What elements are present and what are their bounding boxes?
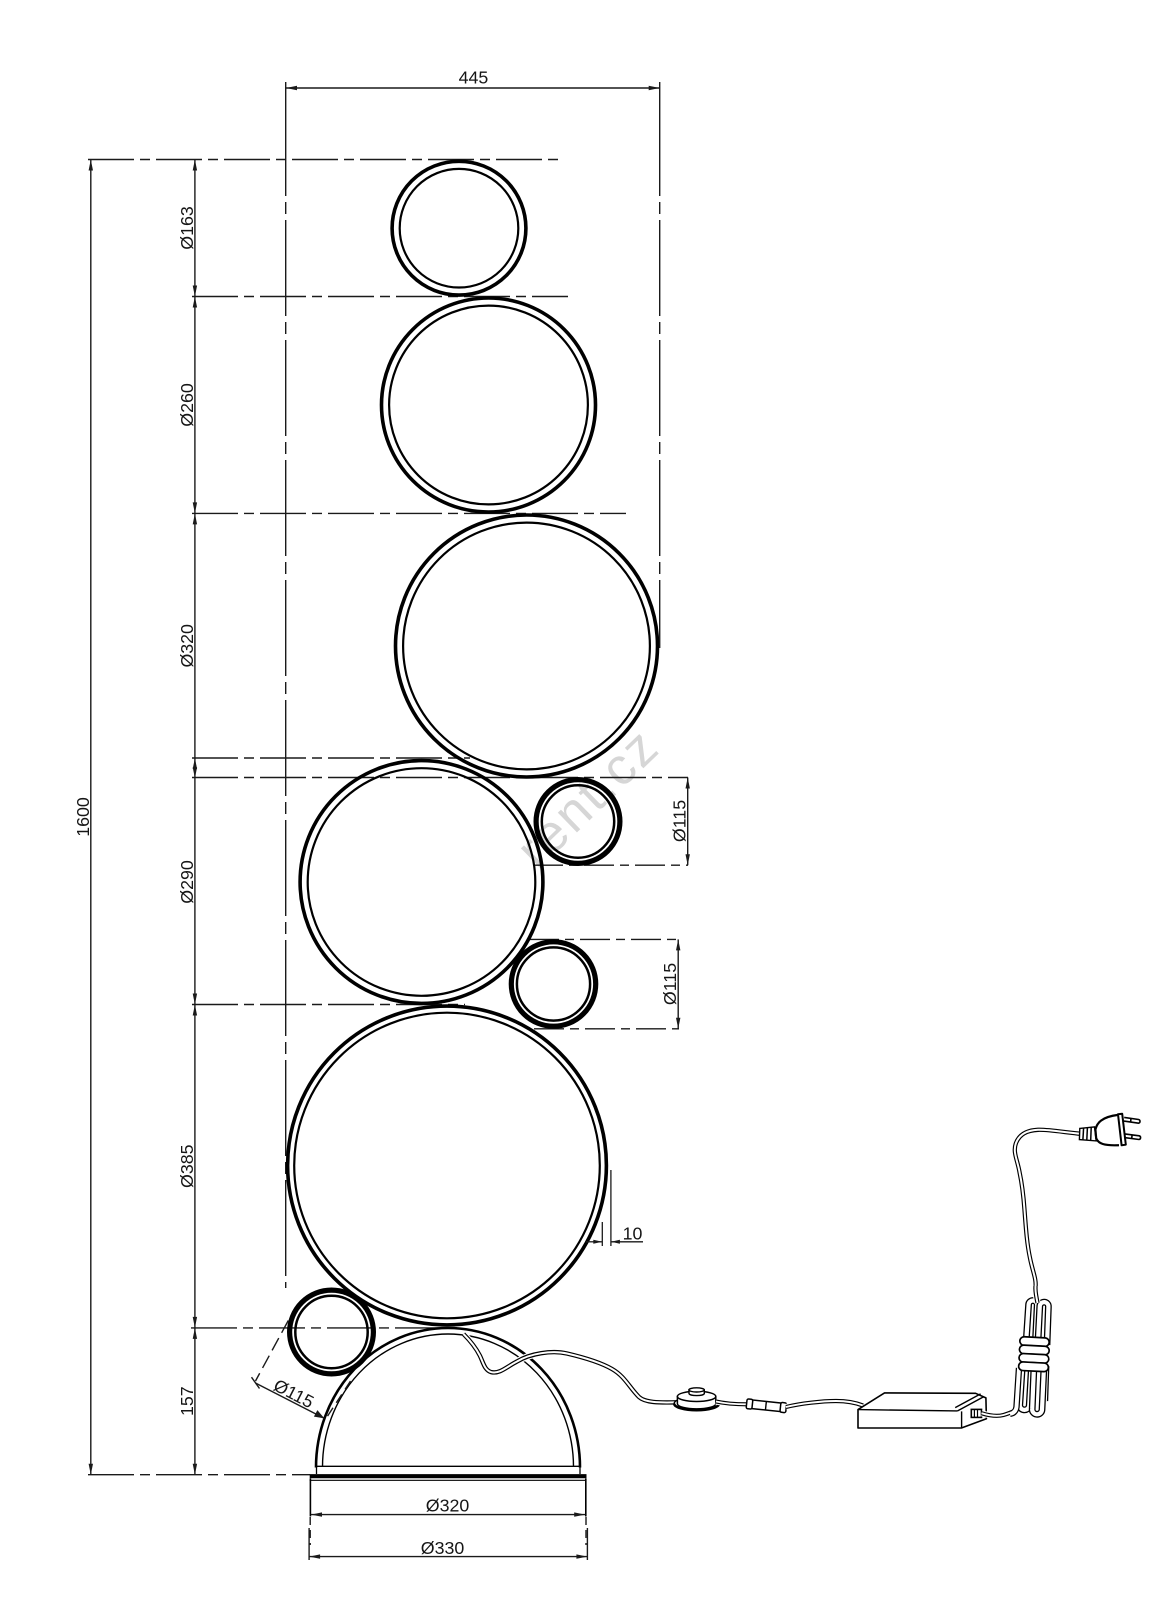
svg-text:Ø330: Ø330 bbox=[421, 1538, 465, 1558]
svg-text:1600: 1600 bbox=[73, 797, 93, 837]
svg-text:445: 445 bbox=[459, 68, 489, 88]
svg-text:Ø115: Ø115 bbox=[669, 800, 689, 842]
svg-text:Ø290: Ø290 bbox=[177, 860, 197, 904]
svg-text:Ø385: Ø385 bbox=[177, 1144, 197, 1188]
svg-text:Ø260: Ø260 bbox=[177, 383, 197, 427]
svg-text:Ø115: Ø115 bbox=[660, 963, 680, 1005]
svg-text:157: 157 bbox=[177, 1386, 197, 1416]
svg-text:Ø163: Ø163 bbox=[177, 206, 197, 250]
svg-text:Ø320: Ø320 bbox=[426, 1496, 470, 1516]
svg-text:Ø320: Ø320 bbox=[177, 624, 197, 668]
svg-text:10: 10 bbox=[623, 1223, 643, 1243]
